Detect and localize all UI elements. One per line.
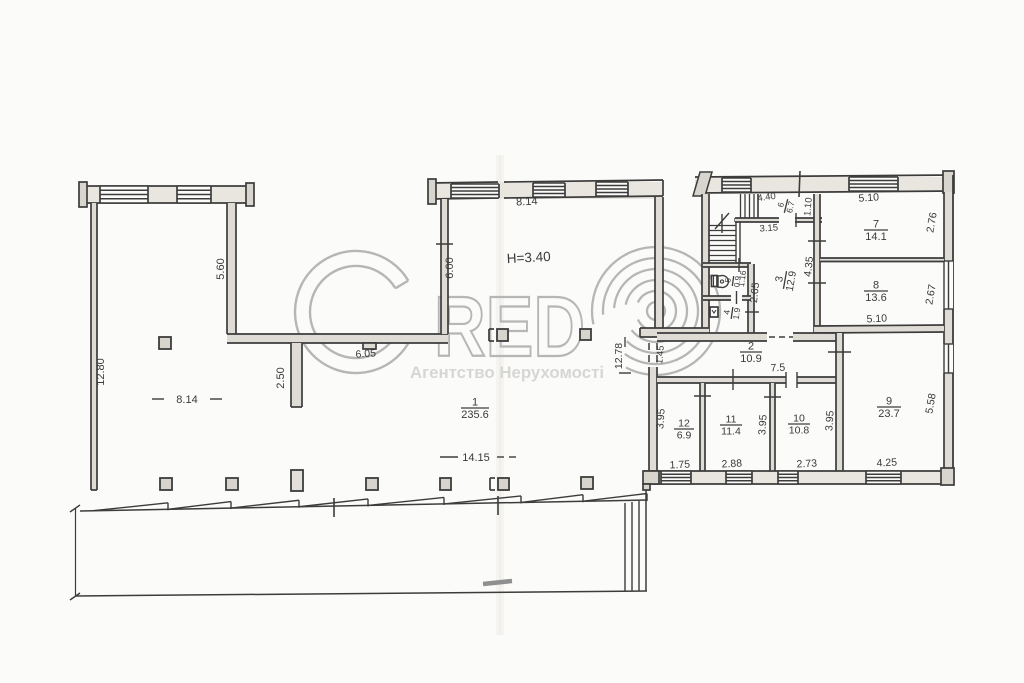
svg-text:1.10: 1.10 bbox=[802, 197, 815, 216]
svg-text:10.8: 10.8 bbox=[789, 425, 810, 437]
svg-text:2.73: 2.73 bbox=[796, 457, 817, 470]
svg-text:2.65: 2.65 bbox=[748, 282, 762, 304]
svg-text:8: 8 bbox=[873, 280, 879, 292]
svg-text:Агентство Нерухомості: Агентство Нерухомості bbox=[410, 364, 604, 382]
svg-text:3.15: 3.15 bbox=[759, 222, 778, 234]
svg-text:12.78: 12.78 bbox=[613, 343, 625, 369]
svg-text:1.9: 1.9 bbox=[731, 307, 743, 320]
svg-text:RED: RED bbox=[434, 280, 585, 375]
svg-text:7.5: 7.5 bbox=[770, 362, 785, 375]
svg-text:4.35: 4.35 bbox=[802, 256, 816, 278]
svg-text:6.00: 6.00 bbox=[444, 257, 456, 278]
svg-text:12: 12 bbox=[678, 418, 690, 430]
svg-text:1.75: 1.75 bbox=[669, 458, 690, 471]
svg-text:235.6: 235.6 bbox=[461, 409, 489, 421]
svg-text:1.45: 1.45 bbox=[654, 345, 667, 364]
svg-text:9: 9 bbox=[886, 396, 892, 408]
svg-text:4.25: 4.25 bbox=[876, 456, 897, 469]
svg-text:7: 7 bbox=[873, 219, 879, 231]
svg-text:3.95: 3.95 bbox=[654, 408, 667, 429]
svg-text:14.1: 14.1 bbox=[865, 231, 886, 243]
svg-text:12.80: 12.80 bbox=[95, 358, 107, 386]
svg-text:6.9: 6.9 bbox=[677, 430, 692, 442]
svg-text:3.95: 3.95 bbox=[823, 410, 836, 431]
svg-text:5.60: 5.60 bbox=[215, 258, 227, 279]
svg-text:6.05: 6.05 bbox=[355, 347, 376, 360]
svg-text:2.50: 2.50 bbox=[275, 367, 287, 388]
svg-text:23.7: 23.7 bbox=[878, 408, 899, 420]
svg-text:13.6: 13.6 bbox=[865, 292, 886, 304]
svg-text:2.88: 2.88 bbox=[721, 457, 742, 470]
svg-text:5.10: 5.10 bbox=[858, 191, 879, 204]
svg-text:11: 11 bbox=[726, 414, 737, 426]
svg-text:1: 1 bbox=[472, 397, 478, 409]
svg-text:10.9: 10.9 bbox=[740, 353, 761, 365]
svg-text:5.10: 5.10 bbox=[866, 312, 887, 325]
svg-text:14.15: 14.15 bbox=[462, 452, 490, 464]
svg-text:H=3.40: H=3.40 bbox=[506, 249, 551, 266]
svg-text:8.14: 8.14 bbox=[516, 195, 538, 208]
svg-text:10: 10 bbox=[793, 413, 805, 425]
svg-text:2: 2 bbox=[748, 341, 754, 353]
svg-text:8.14: 8.14 bbox=[176, 394, 197, 406]
svg-text:3.95: 3.95 bbox=[756, 414, 769, 435]
svg-text:11.4: 11.4 bbox=[721, 426, 741, 438]
